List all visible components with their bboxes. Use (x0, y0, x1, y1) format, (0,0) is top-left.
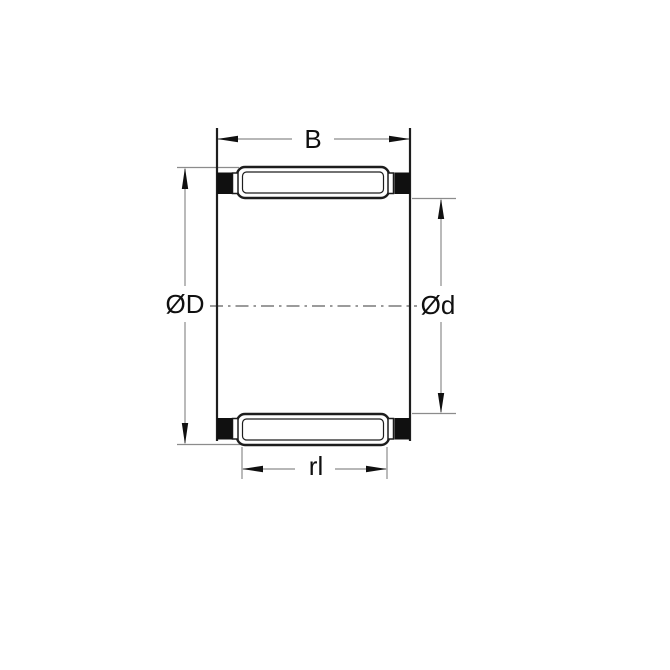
cage-block-bottom-right (395, 418, 411, 440)
dim-id-arrow-top-icon (438, 199, 444, 220)
dim-b-arrow-right-icon (389, 136, 410, 142)
dim-od-arrow-bottom-icon (182, 423, 188, 445)
cage-block-top-left (217, 173, 233, 195)
cage-block-bottom-left (217, 418, 233, 440)
dim-rl-arrow-right-icon (366, 466, 387, 472)
dim-od-arrow-top-icon (182, 168, 188, 190)
cage-lip-bottom-left (233, 419, 239, 440)
diagram-canvas: B ØD Ød rl (0, 0, 670, 670)
width-dimension-label: B (304, 124, 321, 154)
cage-lip-bottom-right (388, 419, 394, 440)
dim-b-arrow-left-icon (217, 136, 238, 142)
dim-id-arrow-bottom-icon (438, 393, 444, 414)
roller-length-label: rl (309, 451, 323, 481)
dim-rl-arrow-left-icon (242, 466, 263, 472)
inner-diameter-label: Ød (421, 290, 456, 320)
cage-lip-top-left (233, 173, 239, 194)
cage-lip-top-right (388, 173, 394, 194)
outer-diameter-label: ØD (166, 289, 205, 319)
bearing-diagram: B ØD Ød rl (0, 0, 670, 670)
cage-block-top-right (395, 173, 411, 195)
